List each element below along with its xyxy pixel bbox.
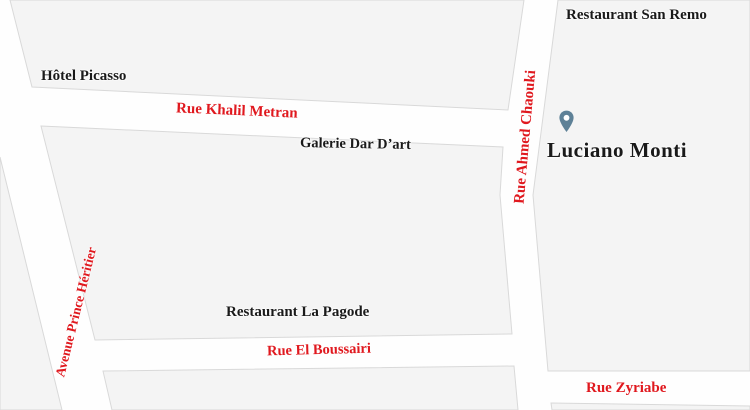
place-label-restaurant-san-remo: Restaurant San Remo [566,7,707,24]
city-block-hotel-picasso [10,0,524,110]
street-map-blocks [0,0,750,410]
place-label-hotel-picasso: Hôtel Picasso [41,68,126,85]
place-label-restaurant-la-pagode: Restaurant La Pagode [226,304,369,321]
location-pin-icon [558,110,575,133]
city-block-san-remo [533,0,750,371]
street-map-canvas: Restaurant San Remo Hôtel Picasso Rue Kh… [0,0,750,410]
place-label-galerie-dar-dart: Galerie Dar D’art [300,135,411,154]
city-block-southeast-sliver [551,403,750,410]
place-label-luciano-monti: Luciano Monti [547,138,687,162]
street-label-rue-zyriabe: Rue Zyriabe [586,380,666,397]
street-label-rue-el-boussairi: Rue El Boussairi [267,341,371,360]
city-block-southwest [103,366,518,410]
